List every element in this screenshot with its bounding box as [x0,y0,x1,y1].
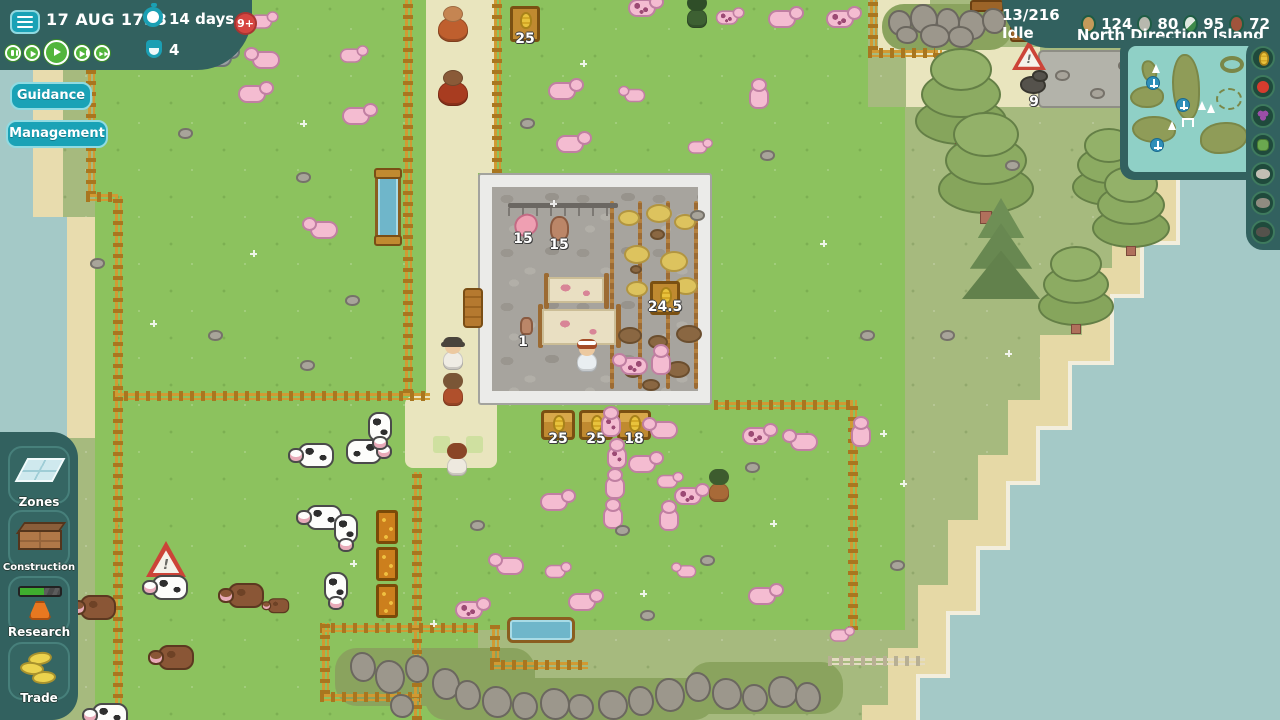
play-button[interactable] [44,40,69,65]
cow[interactable] [332,512,360,554]
pen-rail [694,201,698,389]
rock [690,210,705,221]
pause-button[interactable] [5,45,21,61]
sidebar-item-zones[interactable]: Zones [8,446,70,504]
pig[interactable] [556,128,594,156]
ship-icon [1152,64,1160,73]
villager[interactable] [684,0,710,30]
minimap-filter-strip [1246,38,1280,250]
boulder [712,678,742,710]
fence [490,625,500,662]
stopwatch-icon [143,7,163,27]
cow-brown[interactable] [148,642,196,674]
cow[interactable] [288,440,336,472]
rock [520,118,535,129]
cow[interactable] [366,410,394,452]
boulder [512,692,538,720]
filter-rock-icon[interactable] [1251,191,1275,215]
pig[interactable] [850,416,874,448]
flower-sparkle [820,240,827,247]
fence [868,0,878,50]
villager[interactable] [440,338,466,372]
rock [90,258,105,269]
rock [940,330,955,341]
pig[interactable] [748,580,786,608]
guidance-button[interactable]: Guidance [10,82,92,110]
management-button[interactable]: Management [6,120,108,148]
rock [1090,88,1105,99]
idle-count: 13/216 Idle [1002,6,1076,42]
hide-count: 1 [510,335,536,349]
boulder [455,680,481,710]
flower-sparkle [430,620,437,627]
pig[interactable] [768,3,806,31]
fence-pale [828,656,925,666]
cow[interactable] [82,700,130,720]
boulder [350,652,376,682]
pig[interactable] [300,214,338,242]
carcass-count: 15 [544,238,574,252]
filter-corn-icon[interactable] [1251,46,1275,70]
boulder [375,660,405,694]
ship-icon [1207,104,1215,113]
boulder [405,655,429,683]
boulder [598,690,628,720]
rock [640,610,655,621]
fence [113,196,123,720]
filter-apple-icon[interactable] [1251,75,1275,99]
fastest-button[interactable] [94,45,110,61]
ship-icon [1198,101,1206,110]
filter-cabbage-icon[interactable] [1251,133,1275,157]
pig[interactable] [780,426,818,454]
sidebar-item-construction[interactable]: Construction [8,510,70,568]
sidebar-item-research[interactable]: Research [8,576,70,634]
rock [470,520,485,531]
flower-sparkle [1005,350,1012,357]
pig[interactable] [540,486,578,514]
hauler-villager[interactable] [438,70,468,106]
pig-spotted[interactable] [628,0,666,20]
speed-badge[interactable]: 9+ [234,12,257,35]
flower-sparkle [580,60,587,67]
cow[interactable] [322,570,350,612]
rock [760,150,775,161]
fence [320,623,478,633]
anchor-icon[interactable] [1176,98,1190,112]
fence [113,391,430,401]
pig[interactable] [545,560,574,581]
boulder [655,678,685,712]
fence [492,0,502,173]
rock [345,295,360,306]
sidebar-label: Construction [2,562,76,573]
corn-storage-count: 25 [506,32,544,46]
boulder [628,686,654,716]
pig[interactable] [604,468,628,500]
boulder [768,676,798,708]
pig[interactable] [548,75,586,103]
sidebar-label: Zones [2,495,76,509]
minimap[interactable] [1128,46,1260,172]
hay-feeder[interactable] [376,510,398,544]
flower-sparkle [880,430,887,437]
pig-spotted[interactable] [600,406,624,438]
pig[interactable] [342,100,380,128]
cow-brown[interactable] [262,596,291,615]
pig-spotted[interactable] [455,594,493,622]
sidebar: Zones Construction Research Trade [0,432,78,720]
villager[interactable] [440,374,466,408]
filter-coal-icon[interactable] [1251,220,1275,244]
timer-days: 14 days [169,10,234,28]
filter-grapes-icon[interactable] [1251,104,1275,128]
boulder [540,688,570,720]
rock [860,330,875,341]
villager[interactable] [706,470,732,504]
pig-spotted[interactable] [606,438,630,470]
flower-sparkle [770,520,777,527]
sidebar-label: Research [2,625,76,639]
water-trough[interactable] [375,172,401,242]
boulder [742,684,768,712]
drying-hide[interactable] [548,277,604,303]
pig[interactable] [670,560,697,580]
flask-icon [146,40,162,58]
boulder [482,686,512,718]
pig-spotted[interactable] [742,420,780,448]
rock [890,560,905,571]
anchor-icon[interactable] [1150,138,1164,152]
pig-spotted[interactable] [716,5,746,27]
sidebar-label: Trade [2,691,76,705]
boulder [920,24,950,48]
boulder [685,672,711,702]
rock-pile-count: 9 [1022,95,1046,109]
cow-brown[interactable] [218,580,266,612]
rock [178,128,193,139]
flag-gate-icon [1182,118,1194,127]
rock [300,360,315,371]
pig[interactable] [486,550,524,578]
flower-sparkle [250,250,257,257]
flower-sparkle [300,120,307,127]
fence [490,660,588,670]
feed-count: 25 [541,432,575,446]
menu-button[interactable] [10,10,40,34]
rock [296,172,311,183]
fence [403,0,413,393]
barn-door[interactable] [463,288,483,328]
rock [208,330,223,341]
boulder [795,682,821,712]
pig[interactable] [688,136,715,156]
boulder [568,694,594,720]
pig[interactable] [650,344,674,376]
boulder [896,26,918,44]
cow[interactable] [142,572,190,604]
boulder [390,694,414,718]
pig[interactable] [748,78,772,110]
fence [714,400,850,410]
research-progress-icon [18,586,62,597]
pig-spotted[interactable] [610,350,648,378]
flower-sparkle [350,560,357,567]
sidebar-item-trade[interactable]: Trade [8,642,70,700]
fast-forward-button[interactable] [74,45,90,61]
barn-corn-count: 24.5 [640,300,690,314]
flower-sparkle [150,320,157,327]
pig[interactable] [617,84,646,105]
rock [615,525,630,536]
pig[interactable] [340,43,370,65]
anchor-icon[interactable] [1146,76,1160,90]
flower-sparkle [550,200,557,207]
villager[interactable] [574,340,600,374]
pig-spotted[interactable] [826,3,864,31]
boulder [948,26,974,48]
pig[interactable] [242,44,280,72]
villager[interactable] [444,444,470,478]
hay-feeder[interactable] [376,547,398,581]
play-slow-button[interactable] [24,45,40,61]
rock [1055,70,1070,81]
time-panel: 17 AUG 1733 14 days 4 [0,0,252,70]
meat-count: 15 [508,232,538,246]
rock [1005,160,1020,171]
flask-count: 4 [169,41,179,59]
flower-sparkle [900,480,907,487]
rock [745,462,760,473]
research-flask-icon [29,601,51,620]
game-viewport: 25 25 25 18 15 15 1 24.5 9 ! ! [0,0,1280,720]
ship-icon [1168,121,1176,130]
pig[interactable] [238,78,276,106]
hide-stand[interactable] [520,317,533,335]
pine-tree[interactable] [962,198,1040,299]
pig[interactable] [640,414,678,442]
tree[interactable] [1038,246,1114,331]
pig[interactable] [568,586,606,614]
zones-grid-icon [15,458,66,482]
filter-stone-icon[interactable] [1251,162,1275,186]
rock [700,555,715,566]
water-trough[interactable] [507,617,575,643]
rock-pile [1032,70,1048,82]
flower-sparkle [640,590,647,597]
hay-feeder[interactable] [376,584,398,618]
hauler-villager[interactable] [438,6,468,42]
pig[interactable] [830,624,857,644]
fence [320,623,330,694]
